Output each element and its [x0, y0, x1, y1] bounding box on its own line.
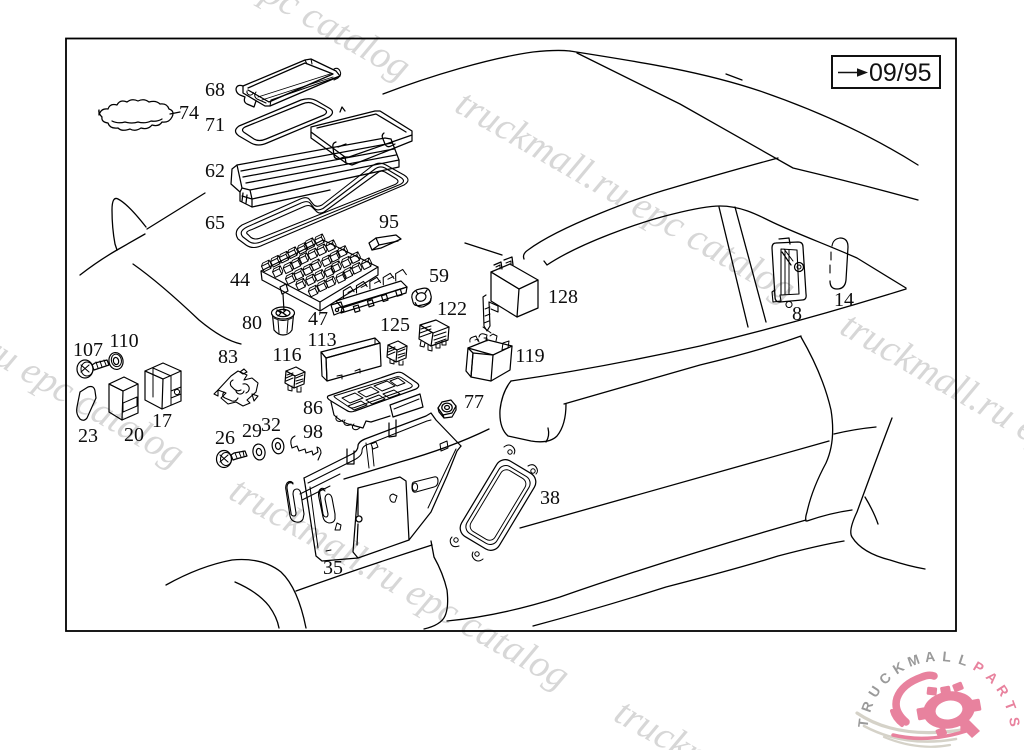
svg-text:20: 20 [124, 424, 144, 446]
svg-text:95: 95 [379, 211, 399, 233]
svg-text:98: 98 [303, 421, 323, 443]
svg-text:truckmall.ru epc catalog: truckmall.ru epc catalog [449, 81, 803, 310]
svg-text:U: U [865, 683, 884, 700]
svg-text:110: 110 [109, 330, 138, 352]
svg-text:80: 80 [242, 312, 262, 334]
svg-text:14: 14 [834, 289, 854, 311]
svg-text:32: 32 [261, 414, 281, 436]
svg-text:truckmall.ru epc catalog: truckmall.ru epc catalog [223, 468, 577, 697]
svg-text:26: 26 [215, 427, 235, 449]
svg-text:113: 113 [307, 329, 336, 351]
svg-text:68: 68 [205, 79, 225, 101]
svg-text:74: 74 [179, 102, 199, 124]
svg-text:128: 128 [548, 286, 578, 308]
svg-text:38: 38 [540, 487, 560, 509]
svg-text:125: 125 [380, 314, 410, 336]
svg-text:09/95: 09/95 [869, 59, 932, 87]
svg-text:23: 23 [78, 425, 98, 447]
svg-text:T: T [1002, 699, 1020, 713]
svg-text:44: 44 [230, 269, 250, 291]
svg-text:35: 35 [323, 557, 343, 579]
svg-text:29: 29 [242, 420, 262, 442]
svg-text:116: 116 [272, 344, 301, 366]
svg-text:86: 86 [303, 397, 323, 419]
svg-text:59: 59 [429, 265, 449, 287]
svg-text:8: 8 [792, 303, 802, 325]
svg-text:C: C [876, 669, 894, 687]
svg-text:62: 62 [205, 160, 225, 182]
svg-text:65: 65 [205, 212, 225, 234]
svg-text:R: R [858, 699, 876, 714]
svg-text:truckmall.ru epc catalog: truckmall.ru epc catalog [64, 0, 418, 89]
svg-text:17: 17 [152, 410, 172, 432]
svg-text:S: S [1006, 716, 1023, 727]
svg-text:L: L [957, 651, 971, 669]
svg-text:122: 122 [437, 298, 467, 320]
svg-text:71: 71 [205, 114, 225, 136]
svg-text:R: R [993, 682, 1012, 699]
svg-text:M: M [905, 651, 921, 670]
svg-text:83: 83 [218, 346, 238, 368]
svg-text:119: 119 [515, 345, 544, 367]
svg-text:P: P [971, 658, 987, 677]
svg-text:A: A [924, 648, 936, 665]
svg-text:107: 107 [73, 339, 103, 361]
svg-text:K: K [890, 658, 907, 677]
svg-text:L: L [942, 648, 953, 665]
svg-text:A: A [983, 668, 1001, 687]
svg-text:47: 47 [308, 308, 328, 330]
svg-text:77: 77 [464, 391, 484, 413]
